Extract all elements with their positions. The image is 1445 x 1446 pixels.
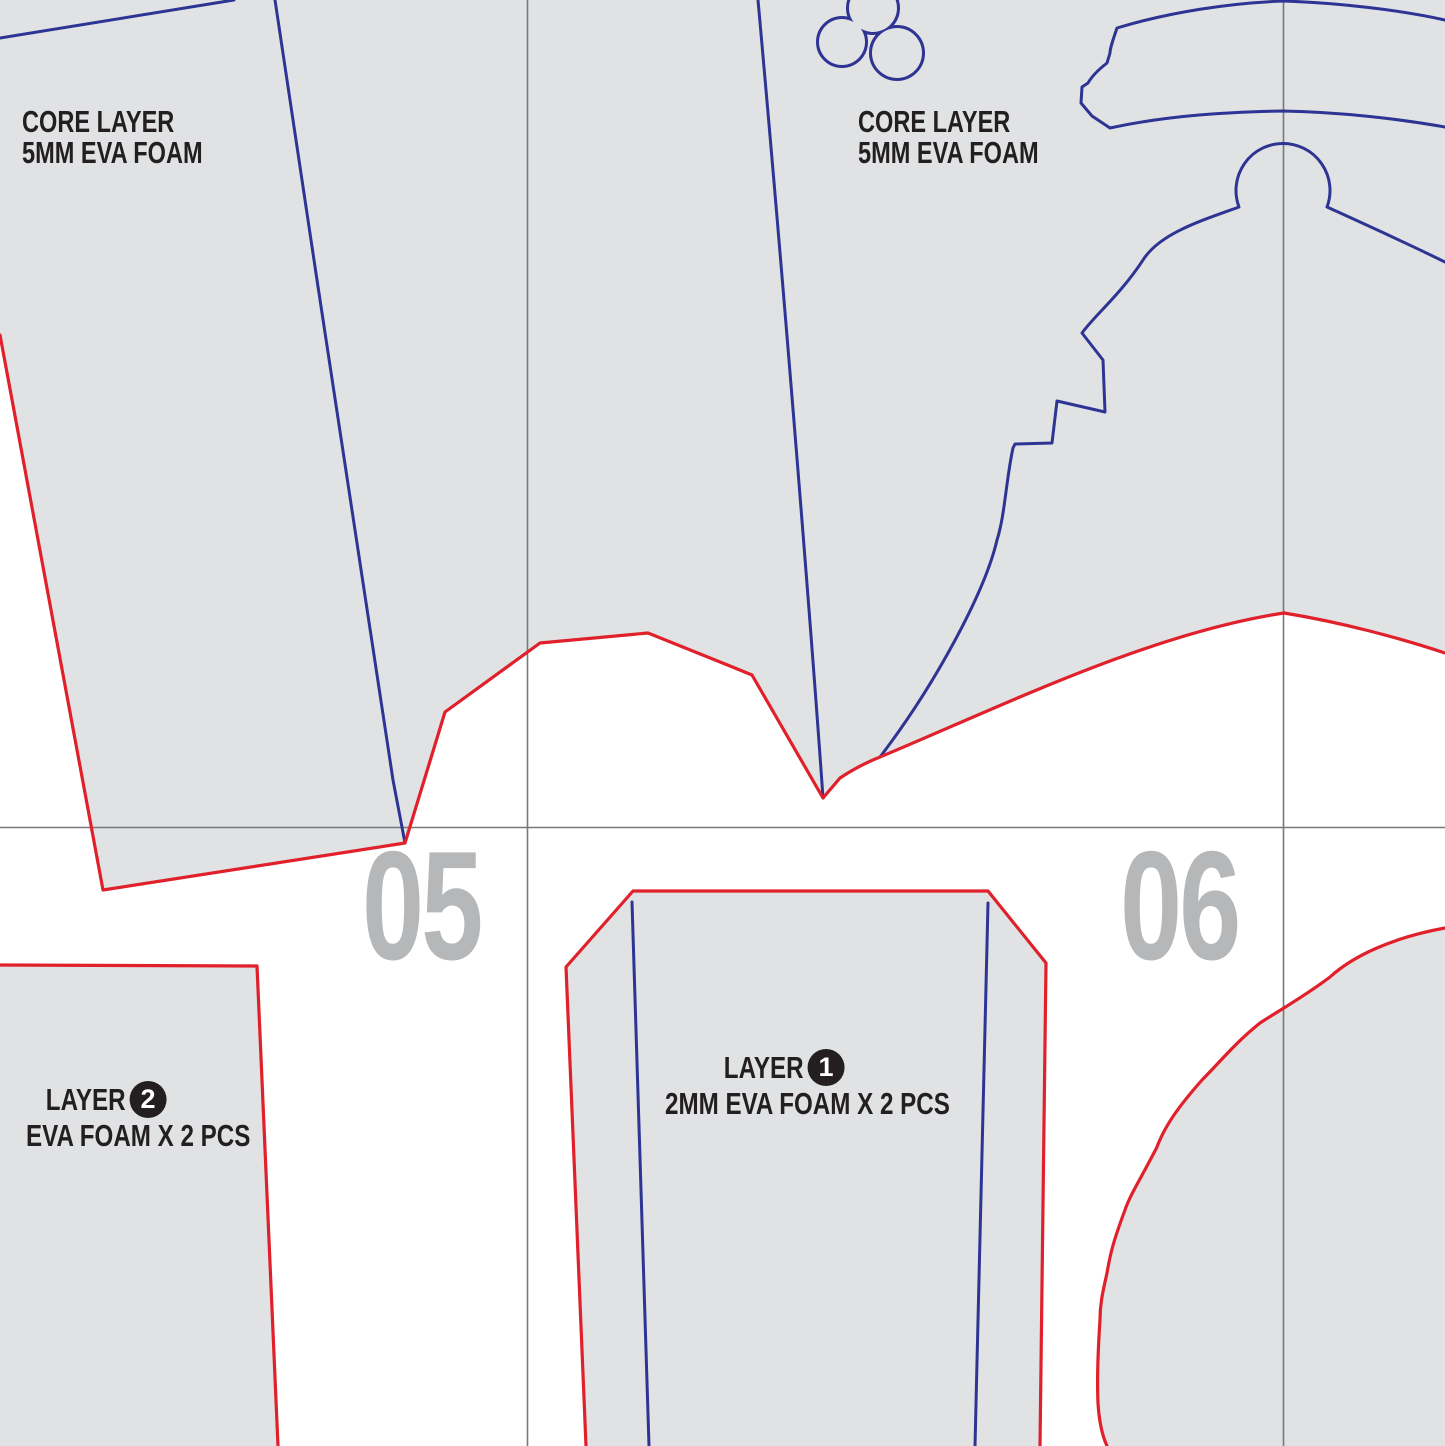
piece-bottom-right — [1098, 928, 1445, 1446]
core-layer-label-line2: 5MM EVA FOAM — [858, 137, 1039, 168]
layer-1-label: LAYER1 2MM EVA FOAM X 2 PCS — [632, 1048, 932, 1119]
pattern-canvas — [0, 0, 1445, 1446]
layer-1-label-line1: LAYER1 — [665, 1048, 899, 1088]
page-number-05: 05 — [362, 828, 480, 983]
foam-fills — [0, 0, 1445, 1446]
layer-2-label: LAYER2 EVA FOAM X 2 PCS — [4, 1080, 204, 1151]
core-layer-label-top-left: CORE LAYER 5MM EVA FOAM — [22, 106, 260, 168]
page-number-06: 06 — [1120, 828, 1238, 983]
pattern-sheet: CORE LAYER 5MM EVA FOAM CORE LAYER 5MM E… — [0, 0, 1445, 1446]
core-layer-label-line1: CORE LAYER — [858, 106, 1039, 137]
layer-2-label-line2: EVA FOAM X 2 PCS — [26, 1120, 182, 1151]
layer-word: LAYER — [46, 1082, 126, 1117]
piece-bottom-center — [566, 891, 1046, 1446]
layer-2-number-badge: 2 — [129, 1081, 166, 1118]
layer-1-number-badge: 1 — [807, 1049, 844, 1086]
core-layer-label-line1: CORE LAYER — [22, 106, 203, 137]
layer-2-label-line1: LAYER2 — [26, 1080, 182, 1120]
core-layer-label-line2: 5MM EVA FOAM — [22, 137, 203, 168]
layer-1-label-line2: 2MM EVA FOAM X 2 PCS — [665, 1088, 899, 1119]
core-layer-label-top-middle: CORE LAYER 5MM EVA FOAM — [858, 106, 1096, 168]
piece-bottom-left — [0, 965, 278, 1446]
layer-word: LAYER — [724, 1050, 804, 1085]
